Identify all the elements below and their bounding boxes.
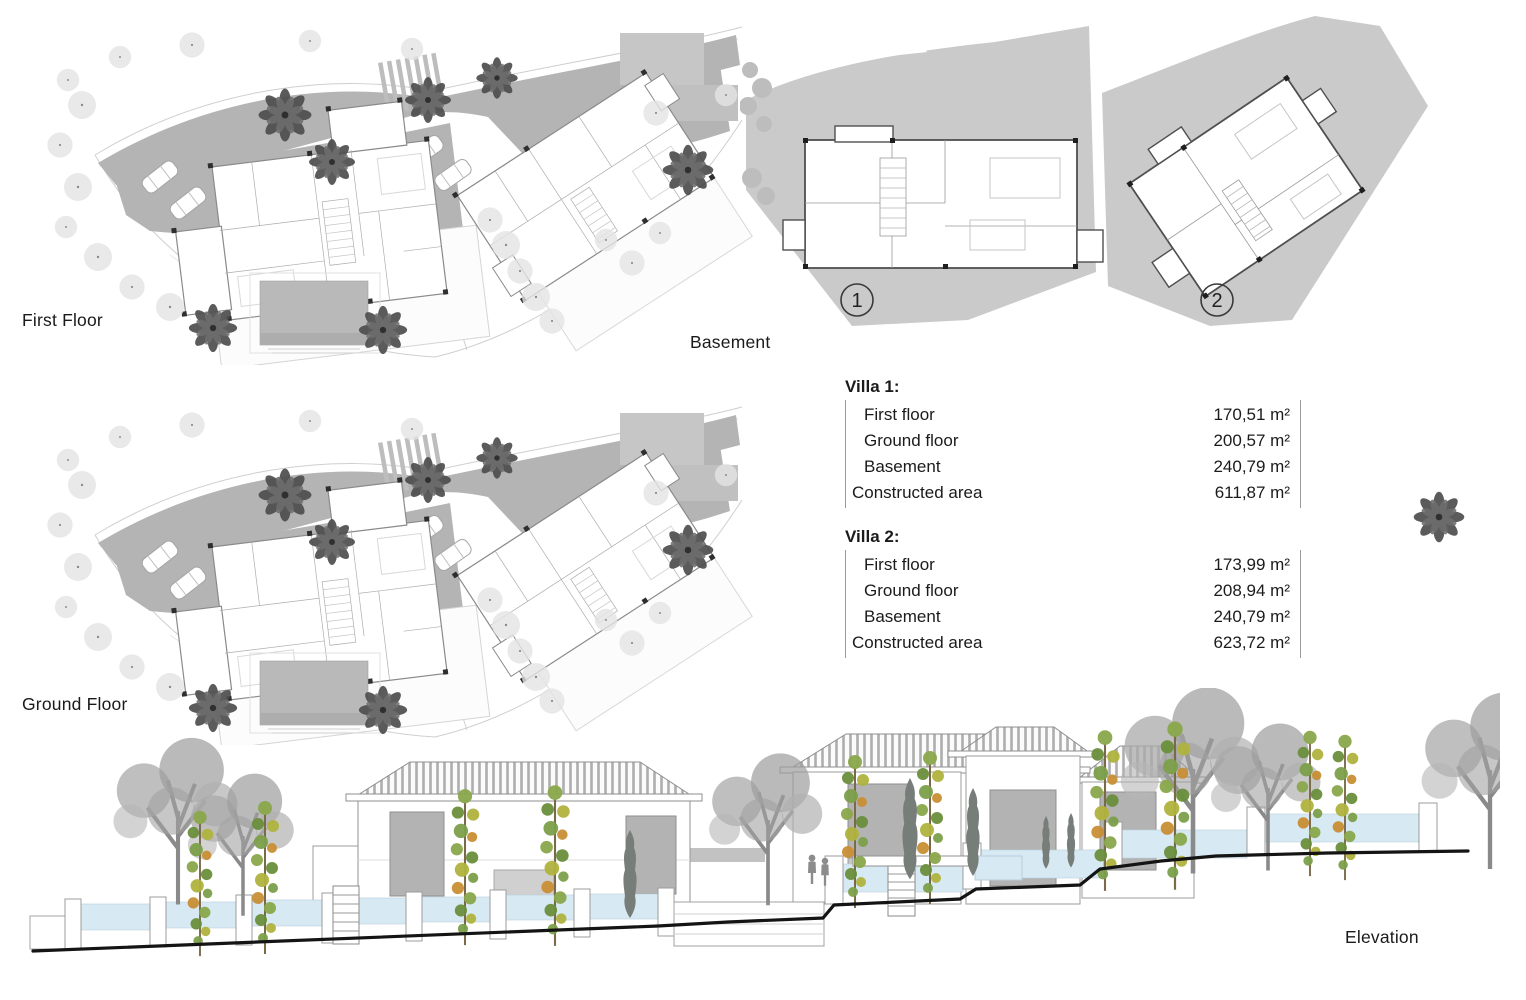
area-row: Constructed area 623,72 m²: [852, 630, 1290, 656]
site-tree: [1410, 488, 1468, 546]
elevation-drawing: [28, 688, 1500, 988]
area-label: First floor: [852, 552, 935, 578]
area-row: Constructed area 611,87 m²: [852, 480, 1290, 506]
area-value: 611,87 m²: [1215, 480, 1290, 506]
basement-marker-1: 1: [851, 290, 862, 312]
first-floor-plan: [20, 5, 760, 365]
area-label: Basement: [852, 454, 941, 480]
area-row: Ground floor 208,94 m²: [852, 578, 1290, 604]
first-floor-label: First Floor: [22, 310, 103, 331]
area-value: 240,79 m²: [1213, 604, 1290, 630]
area-label: Constructed area: [852, 630, 982, 656]
villa-1-basement: [783, 126, 1103, 269]
area-value: 240,79 m²: [1213, 454, 1290, 480]
villa-1-title: Villa 1:: [845, 374, 1301, 400]
area-label: Constructed area: [852, 480, 982, 506]
area-value: 170,51 m²: [1213, 402, 1290, 428]
villa-2-areas: Villa 2: First floor 173,99 m² Ground fl…: [845, 524, 1301, 658]
basement-label: Basement: [690, 332, 770, 353]
basement-plan: 1 2: [740, 8, 1526, 353]
villa-1-rows: First floor 170,51 m² Ground floor 200,5…: [845, 400, 1301, 508]
villa-2-rows: First floor 173,99 m² Ground floor 208,9…: [845, 550, 1301, 658]
area-value: 208,94 m²: [1213, 578, 1290, 604]
area-value: 200,57 m²: [1213, 428, 1290, 454]
area-row: First floor 173,99 m²: [852, 552, 1290, 578]
area-row: Basement 240,79 m²: [852, 454, 1290, 480]
plan-sheet: First Floor: [0, 0, 1526, 1000]
elevation-house-1: [313, 762, 765, 916]
villa-1-areas: Villa 1: First floor 170,51 m² Ground fl…: [845, 374, 1301, 508]
villa-2-title: Villa 2:: [845, 524, 1301, 550]
area-tables: Villa 1: First floor 170,51 m² Ground fl…: [845, 374, 1301, 674]
area-row: Basement 240,79 m²: [852, 604, 1290, 630]
area-label: Basement: [852, 604, 941, 630]
basement-marker-2: 2: [1211, 290, 1222, 312]
area-row: First floor 170,51 m²: [852, 402, 1290, 428]
area-value: 623,72 m²: [1213, 630, 1290, 656]
basement-plot-2: 2: [1098, 16, 1428, 326]
area-label: Ground floor: [852, 578, 959, 604]
elevation-label: Elevation: [1345, 927, 1419, 948]
basement-plot-1: 1: [740, 26, 1103, 326]
area-label: First floor: [852, 402, 935, 428]
area-row: Ground floor 200,57 m²: [852, 428, 1290, 454]
area-label: Ground floor: [852, 428, 959, 454]
area-value: 173,99 m²: [1213, 552, 1290, 578]
